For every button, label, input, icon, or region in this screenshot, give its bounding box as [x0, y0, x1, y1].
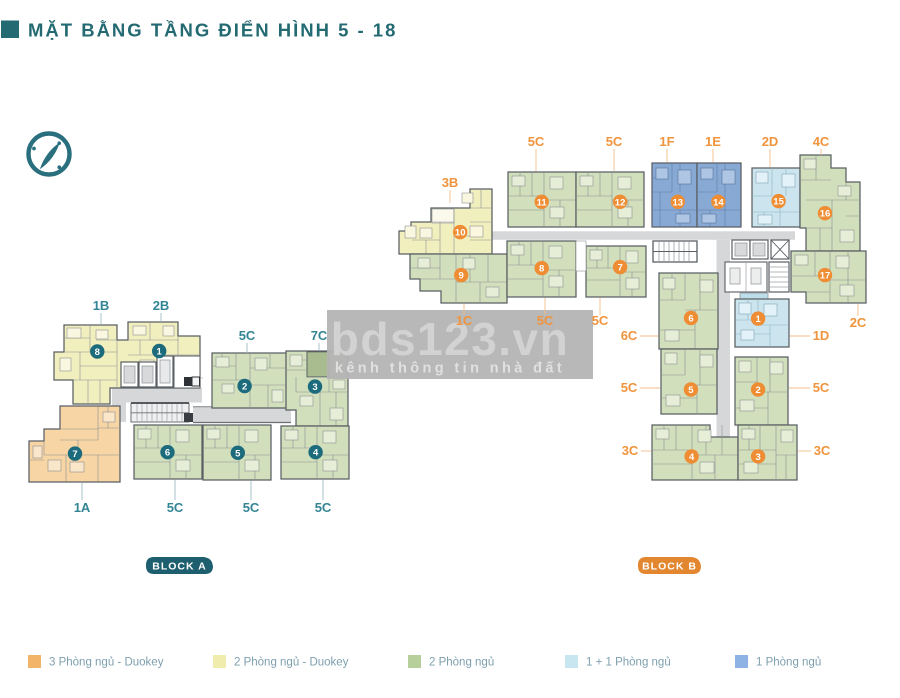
svg-text:1 + 1 Phòng ngủ: 1 + 1 Phòng ngủ: [586, 657, 671, 669]
svg-text:1D: 1D: [813, 328, 830, 343]
svg-text:10: 10: [455, 228, 466, 239]
svg-text:15: 15: [773, 197, 784, 208]
svg-text:5C: 5C: [813, 380, 830, 395]
svg-text:4C: 4C: [813, 134, 830, 149]
svg-text:1A: 1A: [74, 500, 91, 515]
svg-text:2C: 2C: [850, 315, 867, 330]
svg-text:2 Phòng ngủ - Duokey: 2 Phòng ngủ - Duokey: [234, 657, 349, 669]
svg-text:4: 4: [689, 452, 695, 463]
svg-text:14: 14: [713, 197, 724, 208]
svg-text:9: 9: [459, 271, 464, 282]
svg-text:7: 7: [72, 449, 77, 460]
svg-text:3: 3: [312, 382, 317, 393]
svg-text:5: 5: [688, 385, 694, 396]
svg-text:1F: 1F: [659, 134, 674, 149]
svg-text:2 Phòng ngủ: 2 Phòng ngủ: [429, 657, 494, 669]
svg-text:2: 2: [242, 382, 247, 393]
svg-text:2B: 2B: [153, 298, 170, 313]
svg-text:5C: 5C: [621, 380, 638, 395]
svg-text:8: 8: [95, 347, 100, 358]
svg-text:2D: 2D: [762, 134, 779, 149]
svg-text:1E: 1E: [705, 134, 721, 149]
svg-text:17: 17: [820, 271, 831, 282]
svg-text:13: 13: [673, 197, 684, 208]
svg-text:1B: 1B: [93, 298, 110, 313]
svg-text:7: 7: [617, 263, 622, 274]
svg-text:5C: 5C: [528, 134, 545, 149]
svg-text:3 Phòng ngủ - Duokey: 3 Phòng ngủ - Duokey: [49, 657, 164, 669]
svg-text:1: 1: [755, 314, 761, 325]
svg-text:5: 5: [235, 448, 241, 459]
svg-text:7C: 7C: [311, 328, 328, 343]
svg-text:1C: 1C: [456, 313, 473, 328]
svg-text:1 Phòng ngủ: 1 Phòng ngủ: [756, 657, 821, 669]
svg-text:5C: 5C: [537, 313, 554, 328]
svg-text:6: 6: [688, 314, 693, 325]
svg-text:4: 4: [313, 448, 319, 459]
svg-text:12: 12: [615, 197, 626, 208]
svg-text:16: 16: [820, 209, 831, 220]
svg-text:6C: 6C: [621, 328, 638, 343]
svg-text:bds123.vn: bds123.vn: [331, 313, 570, 365]
svg-text:3C: 3C: [814, 443, 831, 458]
svg-text:3: 3: [755, 452, 760, 463]
svg-text:5C: 5C: [606, 134, 623, 149]
svg-text:11: 11: [537, 197, 548, 208]
svg-text:MẶT BẰNG TẦNG ĐIỂN HÌNH 5 - 18: MẶT BẰNG TẦNG ĐIỂN HÌNH 5 - 18: [28, 20, 397, 41]
svg-text:1: 1: [157, 347, 163, 358]
svg-text:3B: 3B: [442, 175, 459, 190]
svg-text:5C: 5C: [315, 500, 332, 515]
svg-text:5C: 5C: [239, 328, 256, 343]
svg-text:6: 6: [165, 448, 170, 459]
svg-text:BLOCK A: BLOCK A: [152, 561, 206, 573]
svg-text:BLOCK B: BLOCK B: [642, 561, 697, 573]
svg-text:8: 8: [539, 264, 544, 275]
svg-text:5C: 5C: [592, 313, 609, 328]
svg-text:5C: 5C: [243, 500, 260, 515]
svg-text:kênh thông tin nhà đất: kênh thông tin nhà đất: [335, 361, 565, 377]
svg-text:5C: 5C: [167, 500, 184, 515]
svg-text:3C: 3C: [622, 443, 639, 458]
svg-text:2: 2: [755, 385, 760, 396]
